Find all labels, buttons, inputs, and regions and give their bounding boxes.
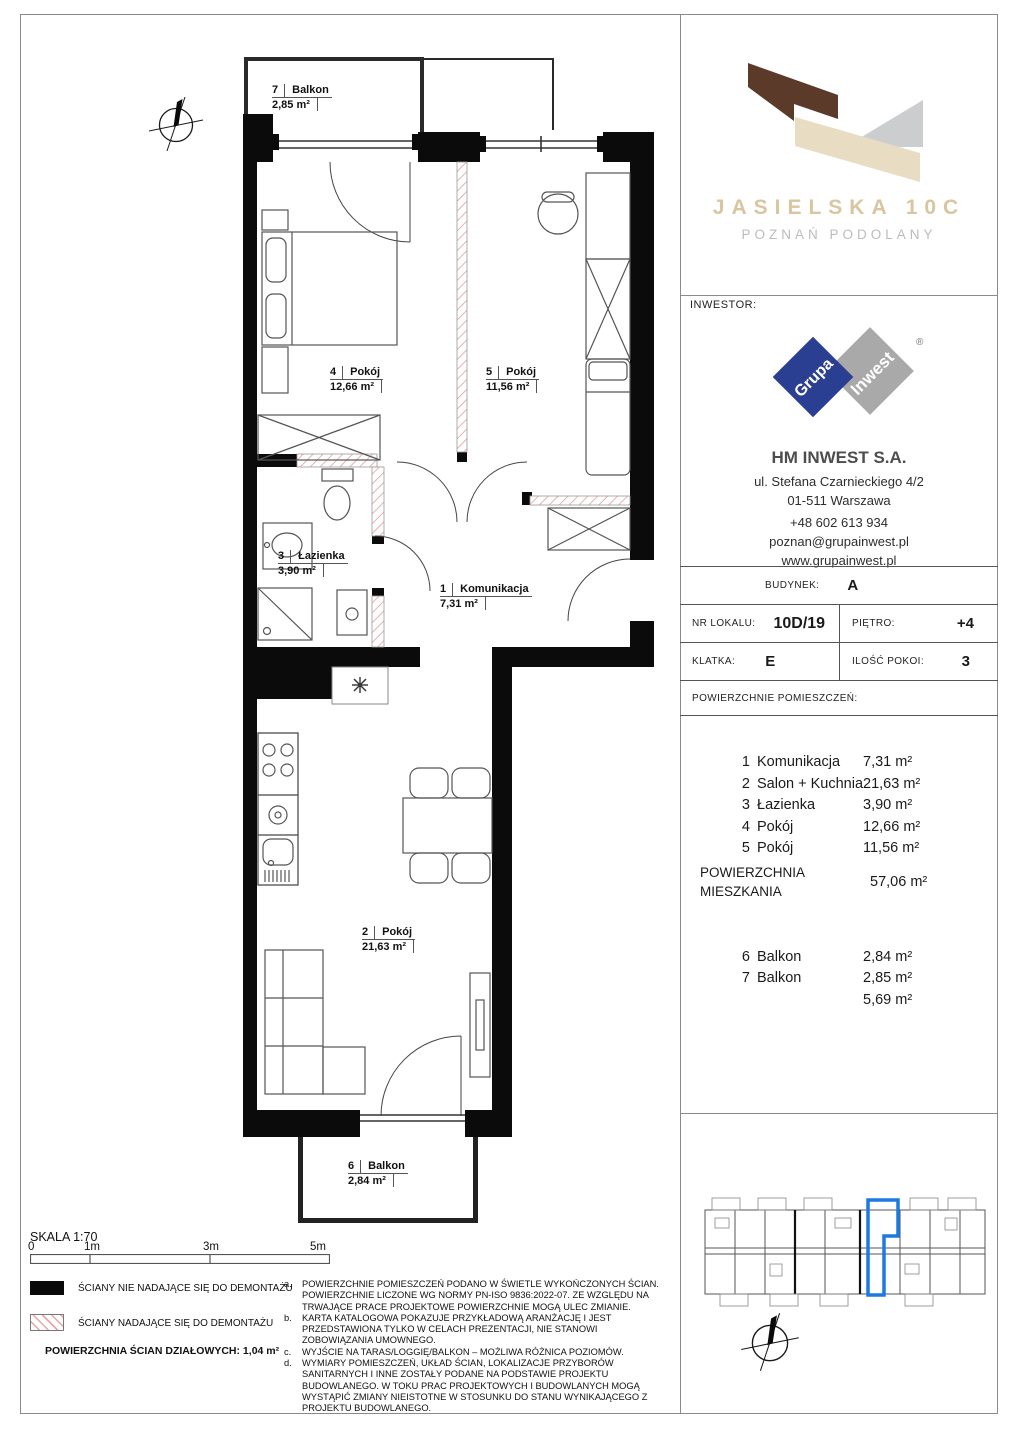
room-area: 3,90 m² [278, 564, 323, 577]
room-area: 11,56 m² [863, 838, 919, 860]
room-row: 5 Pokój 11,56 m² [700, 838, 986, 860]
plan-label-balkon-6: 6Balkon 2,84 m² [348, 1160, 408, 1187]
scale-tick-1m: 1m [84, 1241, 100, 1253]
room-number: 7 [700, 968, 750, 990]
footnote-c: c. WYJŚCIE NA TARAS/LOGGIĘ/BALKON – MOŻL… [284, 1347, 664, 1358]
room-name: Pokój [750, 817, 863, 839]
room-number: 5 [700, 838, 750, 860]
room-area: 21,63 m² [362, 940, 413, 953]
row-budynek: BUDYNEK: A [680, 567, 998, 605]
room-name: Balkon [750, 968, 863, 990]
room-name: Salon + Kuchnia [750, 774, 863, 796]
room-area: 2,84 m² [348, 1174, 393, 1187]
room-name: Pokój [374, 926, 415, 939]
pietro-value: +4 [957, 615, 974, 632]
plan-label-pokoj-5: 5Pokój 11,56 m² [486, 366, 539, 393]
room-number: 4 [700, 817, 750, 839]
nr-lokalu-label: NR LOKALU: [692, 618, 755, 629]
balcony-list: 6 Balkon 2,84 m² 7 Balkon 2,85 m² 5,69 m… [700, 947, 986, 1012]
footnote-letter: a. [284, 1279, 302, 1313]
investor-phone: +48 602 613 934 [680, 515, 998, 530]
total-label-line1: POWIERZCHNIA [700, 863, 870, 882]
scale-tick-5m: 5m [310, 1241, 326, 1253]
balcony-row: 6 Balkon 2,84 m² [700, 947, 986, 969]
ilosc-pokoi-value: 3 [962, 653, 970, 670]
room-name: Łazienka [290, 550, 347, 563]
legend-hatch-wall-swatch [30, 1314, 64, 1331]
compass-icon [149, 97, 203, 151]
total-label-line2: MIESZKANIA [700, 882, 870, 901]
balcony-sum-row: 5,69 m² [700, 990, 986, 1012]
structural-walls [243, 114, 654, 1137]
room-area: 2,85 m² [863, 968, 912, 990]
legend-hatch-wall-label: ŚCIANY NADAJĄCE SIĘ DO DEMONTAŻU [78, 1318, 273, 1329]
scale-tick-0: 0 [28, 1241, 34, 1253]
plan-label-lazienka: 3Łazienka 3,90 m² [278, 550, 348, 577]
room-row: 2 Salon + Kuchnia 21,63 m² [700, 774, 986, 796]
grupa-inwest-logo: Grupa Inwest ® [770, 315, 930, 443]
row-powierzchnie-header: POWIERZCHNIE POMIESZCZEŃ: [680, 681, 998, 716]
footnote-letter: b. [284, 1313, 302, 1347]
total-area-value: 57,06 m² [870, 874, 927, 890]
footnote-text: POWIERZCHNIE POMIESZCZEŃ PODANO W ŚWIETL… [302, 1279, 664, 1313]
room-name: Pokój [498, 366, 539, 379]
balconies-sum: 5,69 m² [863, 990, 912, 1012]
plan-label-pokoj-4: 4Pokój 12,66 m² [330, 366, 383, 393]
room-number: 1 [440, 583, 452, 596]
plan-label-balkon-7: 7Balkon 2,85 m² [272, 84, 332, 111]
room-row: 1 Komunikacja 7,31 m² [700, 752, 986, 774]
room-name: Łazienka [750, 795, 863, 817]
room-row: 3 Łazienka 3,90 m² [700, 795, 986, 817]
footnote-text: KARTA KATALOGOWA POKAZUJE PRZYKŁADOWĄ AR… [302, 1313, 664, 1347]
legend-solid-wall-swatch [30, 1281, 64, 1295]
room-area: 3,90 m² [863, 795, 912, 817]
pietro-label: PIĘTRO: [852, 618, 895, 629]
room-area-list: 1 Komunikacja 7,31 m² 2 Salon + Kuchnia … [700, 752, 986, 1011]
room-number: 2 [362, 926, 374, 939]
footnote-text: WYMIARY POMIESZCZEŃ, UKŁAD ŚCIAN, LOKALI… [302, 1358, 664, 1414]
budynek-value: A [847, 577, 858, 594]
room-number: 6 [348, 1160, 360, 1173]
list-minimap-divider [681, 1113, 997, 1114]
room-number: 7 [272, 84, 284, 97]
total-area-label: POWIERZCHNIA MIESZKANIA [700, 863, 870, 901]
footnote-letter: d. [284, 1358, 302, 1414]
ilosc-pokoi-label: ILOŚĆ POKOI: [852, 656, 924, 667]
budynek-label: BUDYNEK: [765, 580, 819, 591]
room-area: 7,31 m² [440, 597, 485, 610]
room-name: Pokój [342, 366, 383, 379]
footnote-b: b. KARTA KATALOGOWA POKAZUJE PRZYKŁADOWĄ… [284, 1313, 664, 1347]
investor-email: poznan@grupainwest.pl [680, 534, 998, 549]
balcony-row: 7 Balkon 2,85 m² [700, 968, 986, 990]
vent-star-icon [352, 677, 368, 693]
room-area: 2,84 m² [863, 947, 912, 969]
floor-plan [20, 14, 680, 1230]
row-lokal-pietro: NR LOKALU: 10D/19 PIĘTRO: +4 [680, 605, 998, 643]
room-area: 2,85 m² [272, 98, 317, 111]
room-number: 6 [700, 947, 750, 969]
project-subtitle: POZNAŃ PODOLANY [680, 227, 998, 242]
room-number: 1 [700, 752, 750, 774]
room-name: Balkon [284, 84, 332, 97]
footnotes: a. POWIERZCHNIE POMIESZCZEŃ PODANO W ŚWI… [284, 1279, 664, 1415]
room-number: 3 [700, 795, 750, 817]
room-area: 12,66 m² [330, 380, 381, 393]
room-name: Balkon [750, 947, 863, 969]
windows [279, 136, 597, 1121]
room-number: 2 [700, 774, 750, 796]
registered-mark: ® [916, 337, 924, 348]
powierzchnie-label: POWIERZCHNIE POMIESZCZEŃ: [692, 693, 858, 704]
investor-name: HM INWEST S.A. [680, 448, 998, 468]
scale-tick-3m: 3m [203, 1241, 219, 1253]
total-area-row: POWIERZCHNIA MIESZKANIA 57,06 m² [700, 863, 986, 901]
klatka-value: E [765, 653, 775, 670]
room-area: 11,56 m² [486, 380, 536, 393]
project-title: JASIELSKA 10C [680, 196, 998, 220]
room-area: 12,66 m² [863, 817, 920, 839]
room-number: 5 [486, 366, 498, 379]
building-minimap [700, 1192, 992, 1312]
scale-bar [30, 1254, 330, 1264]
plan-label-komunikacja: 1Komunikacja 7,31 m² [440, 583, 532, 610]
klatka-label: KLATKA: [692, 656, 735, 667]
investor-address-1: ul. Stefana Czarnieckiego 4/2 [680, 474, 998, 489]
investor-address-2: 01-511 Warszawa [680, 493, 998, 508]
legend-solid-wall-label: ŚCIANY NIE NADAJĄCE SIĘ DO DEMONTAŻU [78, 1283, 293, 1294]
footnote-text: WYJŚCIE NA TARAS/LOGGIĘ/BALKON – MOŻLIWA… [302, 1347, 664, 1358]
room-name: Balkon [360, 1160, 408, 1173]
logo-investor-divider [681, 295, 997, 296]
room-area: 7,31 m² [863, 752, 912, 774]
investor-label: INWESTOR: [690, 299, 757, 311]
room-area: 21,63 m² [863, 774, 920, 796]
unit-info-table: BUDYNEK: A NR LOKALU: 10D/19 PIĘTRO: +4 … [680, 566, 998, 716]
room-row: 4 Pokój 12,66 m² [700, 817, 986, 839]
footnote-d: d. WYMIARY POMIESZCZEŃ, UKŁAD ŚCIAN, LOK… [284, 1358, 664, 1414]
project-logo [740, 55, 930, 191]
legend-partition-area-label: POWIERZCHNIA ŚCIAN DZIAŁOWYCH: 1,04 m² [45, 1345, 279, 1357]
footnote-letter: c. [284, 1347, 302, 1358]
row-klatka-pokoje: KLATKA: E ILOŚĆ POKOI: 3 [680, 643, 998, 681]
room-name: Komunikacja [452, 583, 531, 596]
compass-icon [738, 1310, 802, 1374]
plan-label-salon: 2Pokój 21,63 m² [362, 926, 415, 953]
nr-lokalu-value: 10D/19 [773, 615, 825, 633]
furniture [258, 173, 630, 1094]
room-number: 3 [278, 550, 290, 563]
room-number: 4 [330, 366, 342, 379]
room-name: Komunikacja [750, 752, 863, 774]
room-name: Pokój [750, 838, 863, 860]
footnote-a: a. POWIERZCHNIE POMIESZCZEŃ PODANO W ŚWI… [284, 1279, 664, 1313]
